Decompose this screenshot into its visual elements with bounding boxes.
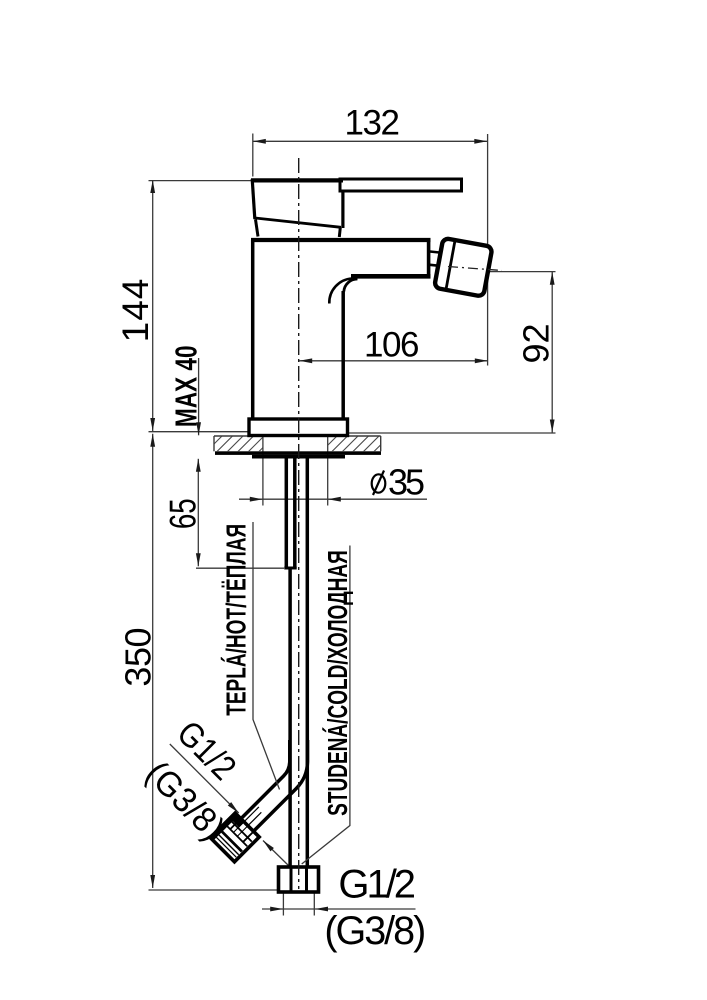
- svg-text:TEPLÁ/HOT/ТЁПЛАЯ: TEPLÁ/HOT/ТЁПЛАЯ: [220, 524, 253, 716]
- svg-text:106: 106: [364, 326, 418, 365]
- svg-text:132: 132: [345, 104, 399, 143]
- svg-text:G1/2: G1/2: [338, 863, 414, 907]
- svg-text:92: 92: [516, 323, 557, 363]
- svg-text:350: 350: [118, 628, 159, 687]
- svg-text:65: 65: [162, 498, 204, 529]
- svg-text:(G3/8): (G3/8): [324, 909, 424, 953]
- svg-text:35: 35: [388, 462, 424, 503]
- svg-text:MAX 40: MAX 40: [168, 345, 203, 427]
- svg-text:144: 144: [115, 278, 156, 343]
- svg-text:STUDENÁ/COLD/ХОЛОДНАЯ: STUDENÁ/COLD/ХОЛОДНАЯ: [321, 550, 354, 816]
